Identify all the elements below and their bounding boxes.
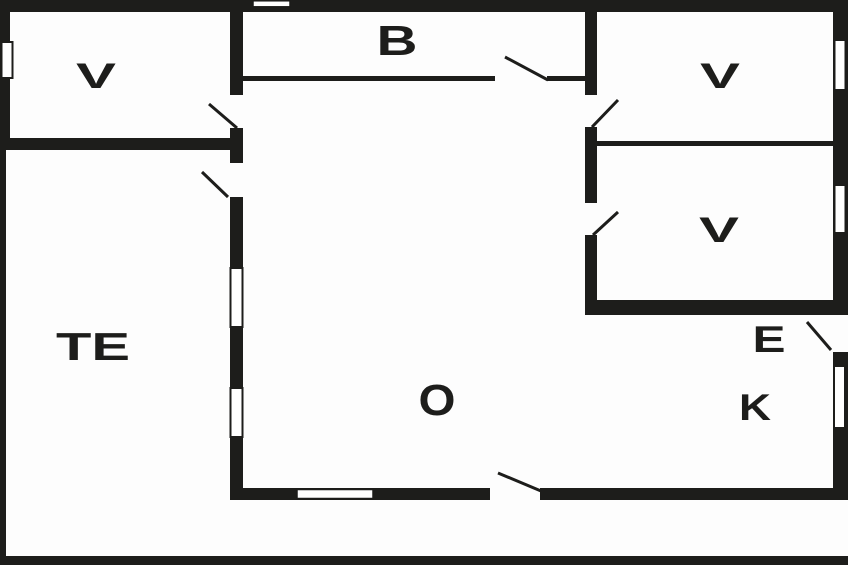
wall-living-west-seg5	[230, 437, 243, 500]
room-label-bedroom-mid-right: V	[699, 211, 740, 250]
door-swing-entrance	[807, 322, 831, 350]
room-label-living-room: O	[419, 376, 456, 425]
window-top-wall	[253, 1, 290, 7]
terrace-outline-bottom	[0, 556, 848, 565]
wall-bedroom-mid-right-bottom	[585, 300, 848, 315]
wall-living-west-seg3	[230, 197, 243, 268]
window-left-wall	[2, 42, 13, 78]
wall-outer-bottom-right	[540, 488, 848, 500]
room-label-bedroom-top-right: V	[700, 57, 741, 96]
wall-living-west-seg1	[230, 0, 243, 95]
room-label-terrace: TE	[56, 326, 130, 369]
wall-living-east-seg1	[585, 0, 597, 95]
floorplan-drawing: V B V V TE O E K	[0, 0, 848, 565]
door-swing-living-bottom	[498, 473, 541, 491]
room-label-entrance: E	[753, 319, 786, 360]
window-bottom-wall	[297, 490, 373, 499]
door-swing-terrace	[202, 172, 228, 197]
floorplan: V B V V TE O E K	[0, 0, 848, 565]
door-swing-bathroom	[505, 57, 548, 80]
window-living-west-lower	[231, 388, 243, 437]
door-swing-bedroom-mid-right	[593, 212, 618, 235]
door-swing-bedroom-top-left	[209, 104, 237, 128]
wall-bathroom-bottom-left	[243, 76, 495, 81]
terrace-outline-left	[0, 150, 6, 563]
window-right-bedroom-top	[835, 40, 846, 90]
wall-living-west-seg4	[230, 327, 243, 388]
wall-living-west-seg2	[230, 128, 243, 163]
wall-living-east-seg2	[585, 127, 597, 203]
room-label-kitchen: K	[739, 387, 771, 428]
window-living-west-upper	[231, 268, 243, 327]
window-right-bedroom-mid	[835, 185, 846, 233]
wall-right-bedrooms-divider	[597, 141, 833, 146]
window-right-kitchen	[834, 366, 845, 428]
wall-outer-top	[0, 0, 848, 12]
room-label-bedroom-top-left: V	[76, 57, 117, 96]
wall-living-east-seg3	[585, 235, 597, 300]
wall-bathroom-bottom-right	[547, 76, 585, 81]
room-label-bathroom: B	[377, 17, 418, 64]
wall-bedroom-top-left-bottom	[0, 138, 243, 150]
door-swing-bedroom-top-right	[592, 100, 618, 127]
